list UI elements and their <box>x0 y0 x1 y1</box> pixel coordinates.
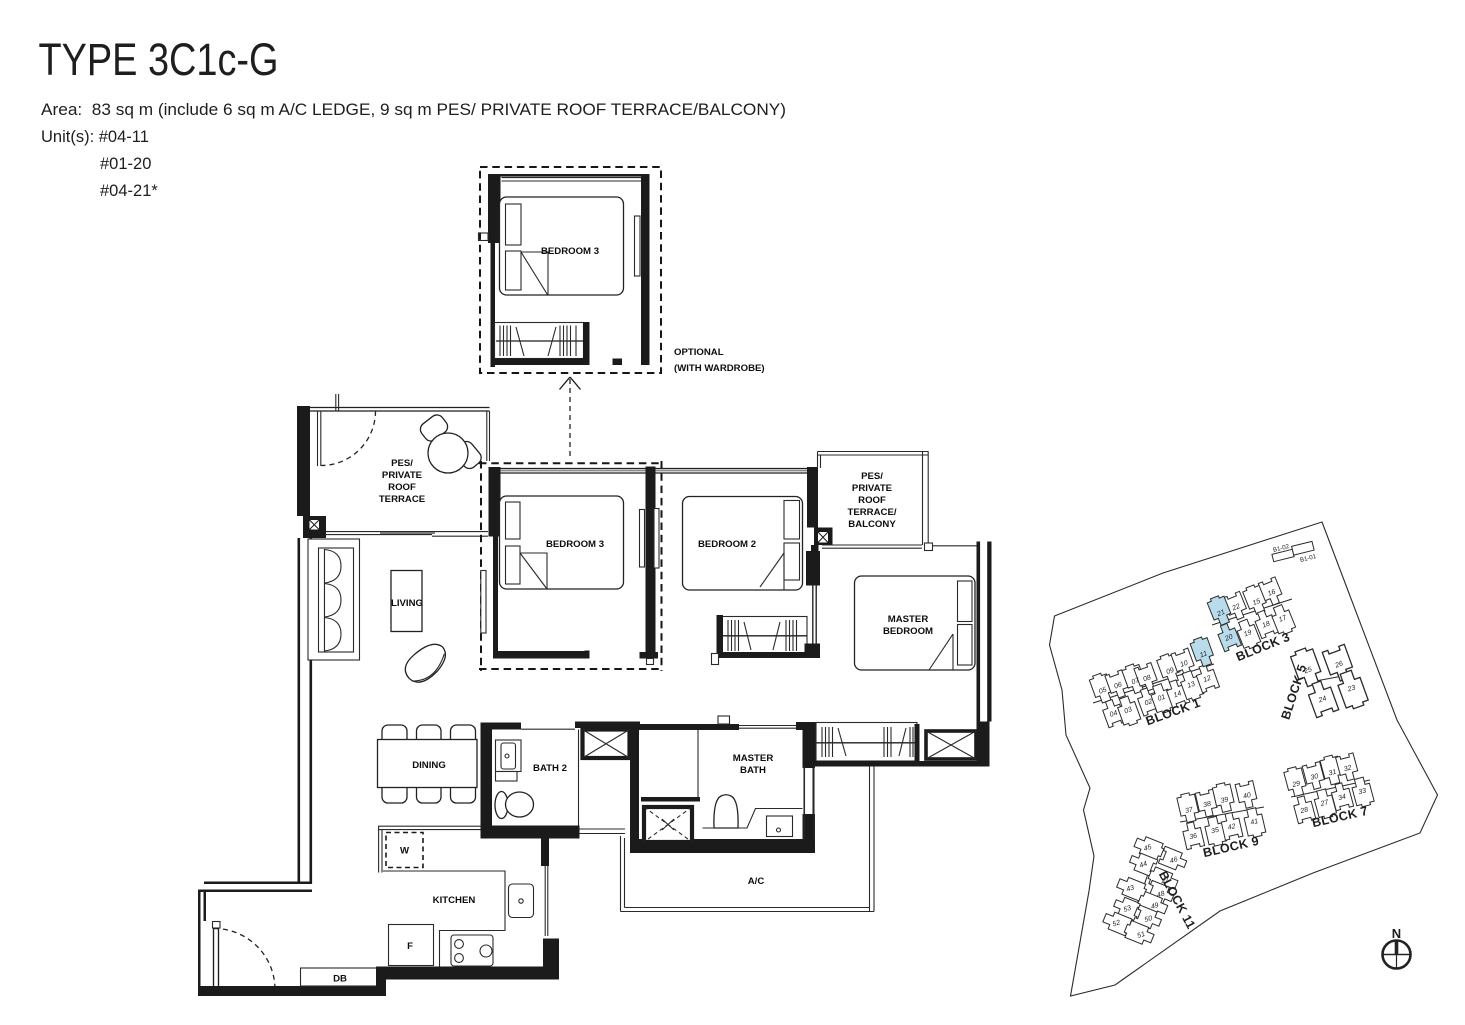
svg-text:#01-20: #01-20 <box>100 155 151 173</box>
svg-text:KITCHEN: KITCHEN <box>433 895 476 906</box>
svg-text:MASTER: MASTER <box>888 614 929 625</box>
svg-text:OPTIONAL: OPTIONAL <box>674 347 724 358</box>
svg-text:BATH: BATH <box>740 765 766 776</box>
svg-text:TYPE 3C1c-G: TYPE 3C1c-G <box>39 34 279 85</box>
svg-text:#04-21*: #04-21* <box>100 182 158 200</box>
svg-text:PRIVATE: PRIVATE <box>382 470 423 481</box>
svg-text:BATH 2: BATH 2 <box>533 763 567 774</box>
svg-text:BEDROOM 3: BEDROOM 3 <box>546 539 604 550</box>
svg-text:ROOF: ROOF <box>858 495 886 506</box>
svg-text:DINING: DINING <box>412 760 446 771</box>
svg-text:A/C: A/C <box>748 876 765 887</box>
svg-text:PES/: PES/ <box>861 471 883 482</box>
svg-text:Unit(s): #04-11: Unit(s): #04-11 <box>41 128 149 146</box>
svg-text:W: W <box>400 846 410 857</box>
svg-text:PRIVATE: PRIVATE <box>852 483 893 494</box>
svg-text:BALCONY: BALCONY <box>848 519 896 530</box>
svg-text:N: N <box>1392 926 1401 941</box>
svg-text:B1-01: B1-01 <box>1299 553 1317 564</box>
svg-text:PES/: PES/ <box>391 458 413 469</box>
svg-text:BEDROOM 2: BEDROOM 2 <box>698 539 756 550</box>
svg-text:F: F <box>407 941 413 952</box>
svg-text:Area: 83 sq m (include 6 sq m: Area: 83 sq m (include 6 sq m A/C LEDGE,… <box>41 101 786 119</box>
svg-text:MASTER: MASTER <box>733 753 774 764</box>
svg-text:TERRACE: TERRACE <box>379 494 426 505</box>
svg-text:TERRACE/: TERRACE/ <box>847 507 896 518</box>
svg-text:BEDROOM: BEDROOM <box>883 626 933 637</box>
svg-text:DB: DB <box>333 974 347 985</box>
svg-text:LIVING: LIVING <box>391 598 423 609</box>
svg-text:(WITH WARDROBE): (WITH WARDROBE) <box>674 363 765 374</box>
svg-text:ROOF: ROOF <box>388 482 416 493</box>
svg-text:BLOCK 5: BLOCK 5 <box>1279 663 1310 722</box>
svg-text:BEDROOM 3: BEDROOM 3 <box>541 246 599 257</box>
